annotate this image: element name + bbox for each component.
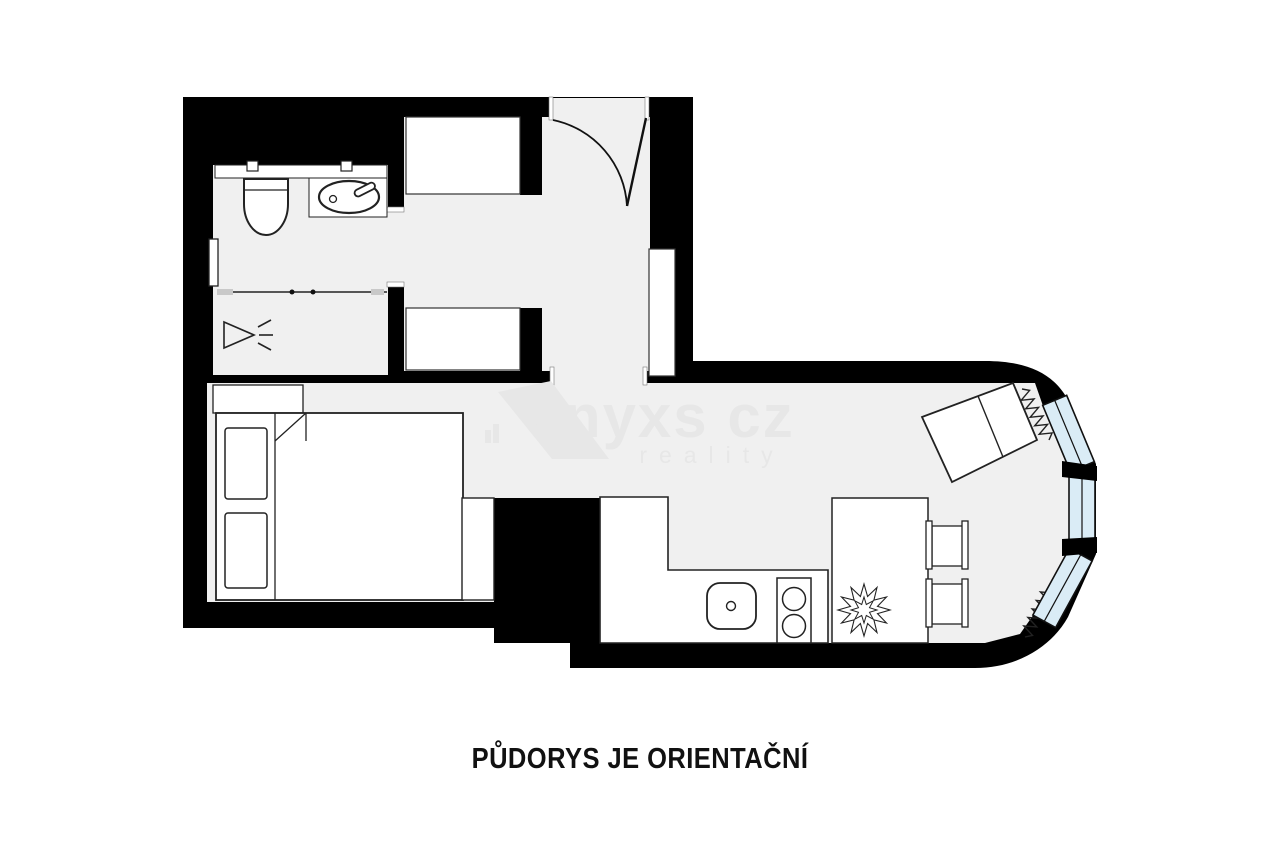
watermark-brand: onyxs cz [525, 383, 794, 450]
watermark-logo-bar2 [493, 424, 499, 443]
wardrobe-niche-wall-bottom [520, 308, 542, 372]
wall-niche [649, 249, 675, 376]
dresser [213, 385, 303, 413]
entry-opening [553, 98, 645, 120]
floor-plan-page: onyxs cz reality [0, 0, 1280, 853]
sink-drain [330, 196, 337, 203]
burner-1 [783, 588, 806, 611]
window-2 [1069, 475, 1095, 547]
side-table [462, 498, 494, 600]
chair-bottom [926, 579, 968, 627]
wardrobe-niche-wall-top [520, 116, 542, 195]
watermark-sub: reality [639, 442, 784, 468]
wardrobe-bottom [406, 308, 520, 370]
shower-screen-hinge-2 [311, 290, 316, 295]
chair-top [926, 521, 968, 569]
bathroom-door-opening [388, 212, 404, 282]
burner-2 [783, 615, 806, 638]
pillow-left [225, 428, 267, 499]
floor-plan-svg: onyxs cz reality [0, 0, 1280, 853]
kitchen-sink-drain [727, 602, 736, 611]
towel-radiator [209, 239, 218, 286]
core-wall-block [494, 498, 600, 643]
plan-caption: PŮDORYS JE ORIENTAČNÍ [77, 743, 1203, 776]
vanity-counter [215, 165, 387, 178]
faucet-left [247, 161, 258, 171]
shower-screen-hinge-1 [290, 290, 295, 295]
watermark-logo-bar1 [485, 430, 491, 443]
toilet [244, 179, 288, 235]
faucet-right [341, 161, 352, 171]
pillow-right [225, 513, 267, 588]
shower-screen-cap-right [371, 289, 384, 295]
wardrobe-top [406, 117, 520, 194]
shower-screen-cap-left [217, 289, 233, 295]
window-mullion-2 [1062, 537, 1097, 556]
